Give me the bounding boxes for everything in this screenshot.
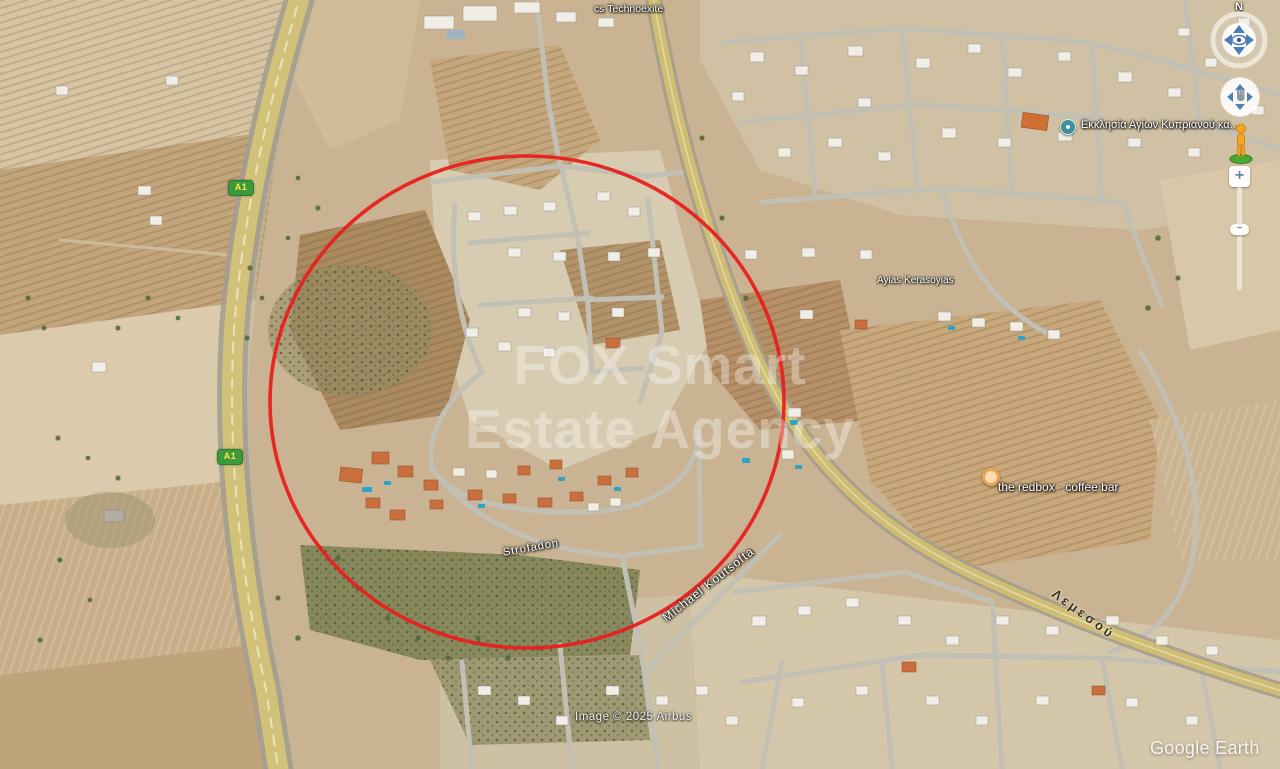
eye-icon [1232,36,1246,45]
a1-route-shield-south: A1 [217,449,243,465]
hand-icon [1237,89,1245,102]
pan-control[interactable] [1218,76,1262,120]
watermark-line2: Estate Agency [340,398,980,462]
watermark-line1: FOX Smart [340,334,980,398]
google-earth-viewport: FOX Smart Estate Agency cs Technoexite Ε… [0,0,1280,769]
label-ayias: Ayias Kerasoyias [877,275,954,286]
imagery-attribution: Image © 2025 Airbus [575,711,692,723]
church-poi-icon[interactable] [1060,119,1076,135]
zoom-in-button[interactable]: + [1229,166,1250,187]
street-view-pegman[interactable] [1228,121,1254,165]
pegman-icon [1237,124,1246,156]
label-church[interactable]: Εκκλησία Αγίων Κυπριανού κα... [1081,119,1239,131]
zoom-slider-handle[interactable]: − [1230,224,1249,235]
watermark: FOX Smart Estate Agency [340,334,980,462]
label-redbox-coffee-bar[interactable]: the redbox · coffee bar [998,480,1119,494]
zoom-slider-track[interactable] [1237,187,1242,290]
look-control[interactable] [1208,8,1270,70]
a1-route-shield-north: A1 [228,180,254,196]
google-earth-logo: Google Earth [1150,738,1260,759]
label-business[interactable]: cs Technoexite [594,3,663,15]
